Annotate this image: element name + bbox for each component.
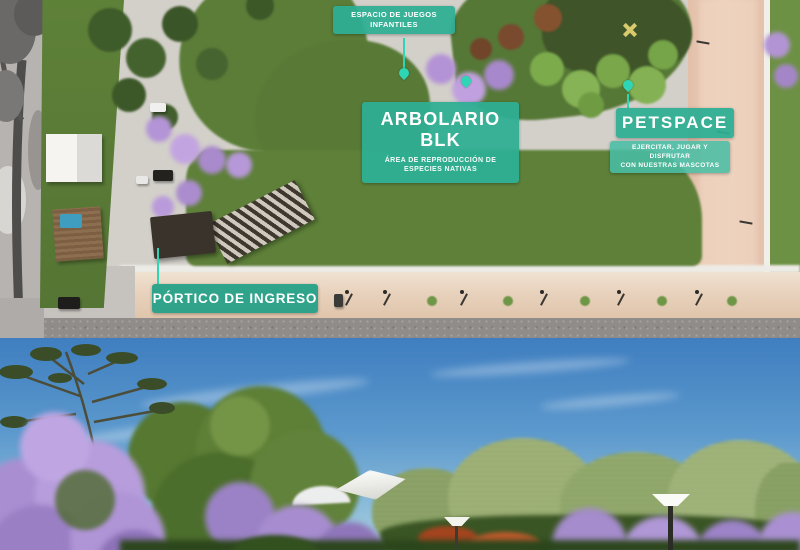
grayscale-tree-photo <box>0 0 44 338</box>
arbolario-title: ARBOLARIO BLK <box>362 109 519 151</box>
jacaranda <box>774 64 798 88</box>
street-lamp <box>383 290 387 294</box>
petspace-subtitle-line2: CON NUESTRAS MASCOTAS <box>611 162 729 171</box>
tree <box>196 48 228 80</box>
entrance-title: PÓRTICO DE INGRESO <box>152 291 318 306</box>
street-road <box>0 318 800 338</box>
playground-label-line2: INFANTILES <box>335 20 453 30</box>
sidewalk-bush <box>503 296 513 306</box>
site-plan-panel: ESPACIO DE JUEGOS INFANTILES ARBOLARIO B… <box>0 0 800 338</box>
house-roof <box>46 134 102 182</box>
playground-label: ESPACIO DE JUEGOS INFANTILES <box>333 6 455 34</box>
jacaranda <box>226 152 252 178</box>
jacaranda <box>198 146 226 174</box>
jacaranda <box>484 60 514 90</box>
jacaranda <box>764 32 790 58</box>
leader-line <box>157 248 159 284</box>
tree <box>126 38 166 78</box>
sidewalk-bush <box>657 296 667 306</box>
petspace-label: PETSPACE <box>616 108 734 138</box>
arbolario-subtitle-line2: ESPECIES NATIVAS <box>362 165 519 174</box>
car <box>150 103 166 112</box>
leafy-highlight <box>210 396 270 456</box>
jacaranda <box>170 134 200 164</box>
cloud <box>430 355 630 380</box>
entrance-wall <box>150 211 216 259</box>
arbolario-label: ARBOLARIO BLK ÁREA DE REPRODUCCIÓN DE ES… <box>362 102 519 183</box>
foliage <box>55 470 115 530</box>
promo-image: ESPACIO DE JUEGOS INFANTILES ARBOLARIO B… <box>0 0 800 550</box>
playground-label-line1: ESPACIO DE JUEGOS <box>335 10 453 20</box>
tree <box>112 78 146 112</box>
bush <box>530 52 564 86</box>
sidewalk-bush <box>727 296 737 306</box>
entrance-label: PÓRTICO DE INGRESO <box>152 284 318 313</box>
brown-tree <box>470 38 492 60</box>
street-lamp <box>540 290 544 294</box>
leader-line <box>627 94 629 108</box>
lamp-pole <box>668 505 673 550</box>
bush <box>648 40 678 70</box>
street-lamp <box>617 290 621 294</box>
bush <box>628 66 666 104</box>
landscape-panel: Bienes Rosario .com <box>0 338 800 550</box>
brown-tree <box>498 24 524 50</box>
petspace-subtitle-line1: EJERCITAR, JUGAR Y DISFRUTAR <box>611 144 729 162</box>
sidewalk-bush <box>427 296 437 306</box>
tree <box>88 8 132 52</box>
street-lamp <box>345 290 349 294</box>
kiosk <box>334 294 343 307</box>
car <box>58 297 80 309</box>
tree <box>162 6 198 42</box>
jacaranda <box>176 180 202 206</box>
car <box>153 170 173 181</box>
bush <box>578 92 604 118</box>
pool <box>60 214 82 228</box>
dark-foliage <box>120 540 800 550</box>
car <box>136 176 148 184</box>
jacaranda <box>146 116 172 142</box>
petspace-title: PETSPACE <box>616 113 734 133</box>
sidewalk-bush <box>580 296 590 306</box>
jacaranda <box>426 54 456 84</box>
street-lamp <box>460 290 464 294</box>
leader-line <box>403 38 405 68</box>
cloud <box>540 390 680 412</box>
lamp-pole <box>455 525 458 550</box>
street-lamp <box>695 290 699 294</box>
petspace-subtitle: EJERCITAR, JUGAR Y DISFRUTAR CON NUESTRA… <box>610 141 730 173</box>
brown-tree <box>534 4 562 32</box>
arbolario-subtitle-line1: ÁREA DE REPRODUCCIÓN DE <box>362 156 519 165</box>
